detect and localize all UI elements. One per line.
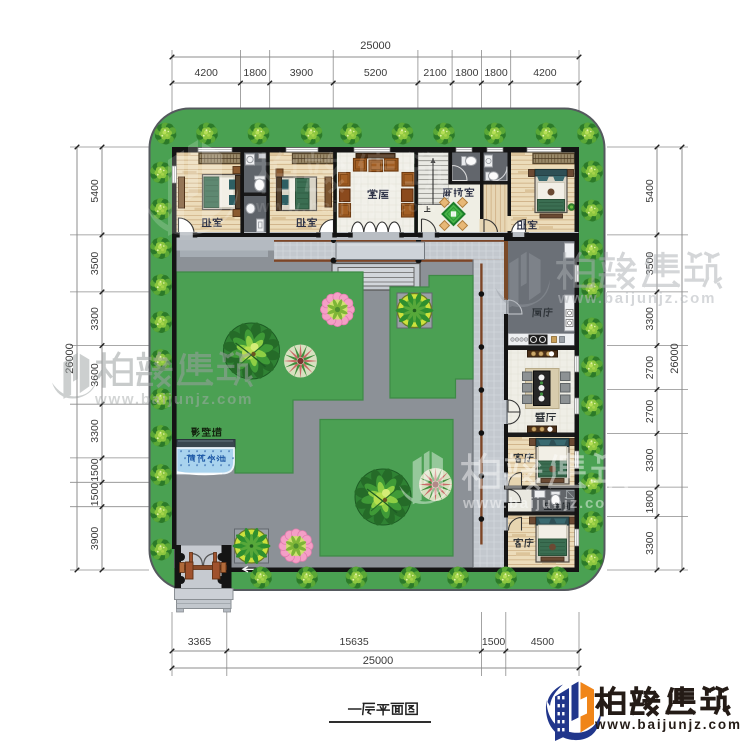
svg-text:1500: 1500 <box>482 636 506 648</box>
svg-text:5400: 5400 <box>89 179 101 203</box>
svg-text:3500: 3500 <box>89 252 101 276</box>
svg-text:1800: 1800 <box>243 67 267 79</box>
svg-text:www.baijunjz.com: www.baijunjz.com <box>557 290 716 307</box>
svg-text:www.baijunjz.com: www.baijunjz.com <box>594 717 742 732</box>
svg-text:15635: 15635 <box>339 636 368 648</box>
svg-text:www.baijunjz.com: www.baijunjz.com <box>462 495 621 512</box>
svg-text:3900: 3900 <box>89 527 101 551</box>
svg-text:4200: 4200 <box>533 67 557 79</box>
svg-text:3300: 3300 <box>644 531 656 555</box>
svg-text:3900: 3900 <box>290 67 314 79</box>
svg-text:26000: 26000 <box>669 343 681 374</box>
svg-text:4200: 4200 <box>195 67 219 79</box>
svg-text:1500: 1500 <box>89 483 101 507</box>
svg-text:2700: 2700 <box>644 356 656 380</box>
svg-text:3300: 3300 <box>644 307 656 331</box>
svg-text:3300: 3300 <box>89 419 101 443</box>
svg-text:1800: 1800 <box>644 490 656 514</box>
svg-text:1800: 1800 <box>484 67 508 79</box>
svg-text:5200: 5200 <box>364 67 388 79</box>
svg-text:3365: 3365 <box>188 636 212 648</box>
svg-text:www.baijunjz.com: www.baijunjz.com <box>94 391 253 408</box>
svg-text:1500: 1500 <box>89 458 101 482</box>
svg-text:2700: 2700 <box>644 400 656 424</box>
svg-text:25000: 25000 <box>360 40 391 52</box>
svg-text:4500: 4500 <box>531 636 555 648</box>
svg-text:5400: 5400 <box>644 179 656 203</box>
svg-text:3300: 3300 <box>644 448 656 472</box>
svg-text:1800: 1800 <box>455 67 479 79</box>
svg-text:2100: 2100 <box>423 67 447 79</box>
svg-text:www.baijunjz.com: www.baijunjz.com <box>255 197 438 216</box>
svg-text:25000: 25000 <box>363 655 394 667</box>
svg-text:3300: 3300 <box>89 307 101 331</box>
